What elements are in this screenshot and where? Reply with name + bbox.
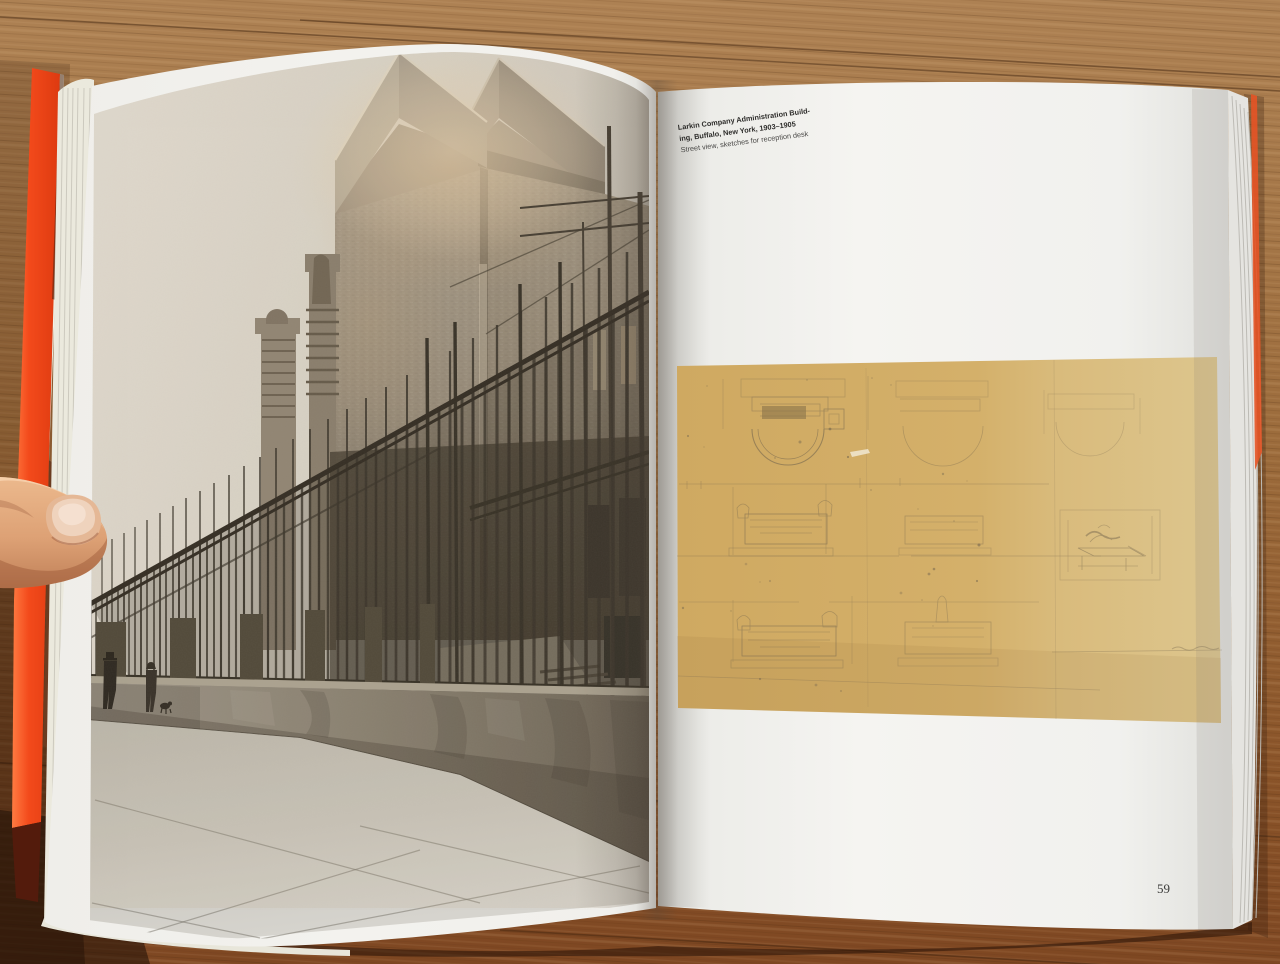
svg-text:59: 59: [1157, 881, 1170, 896]
